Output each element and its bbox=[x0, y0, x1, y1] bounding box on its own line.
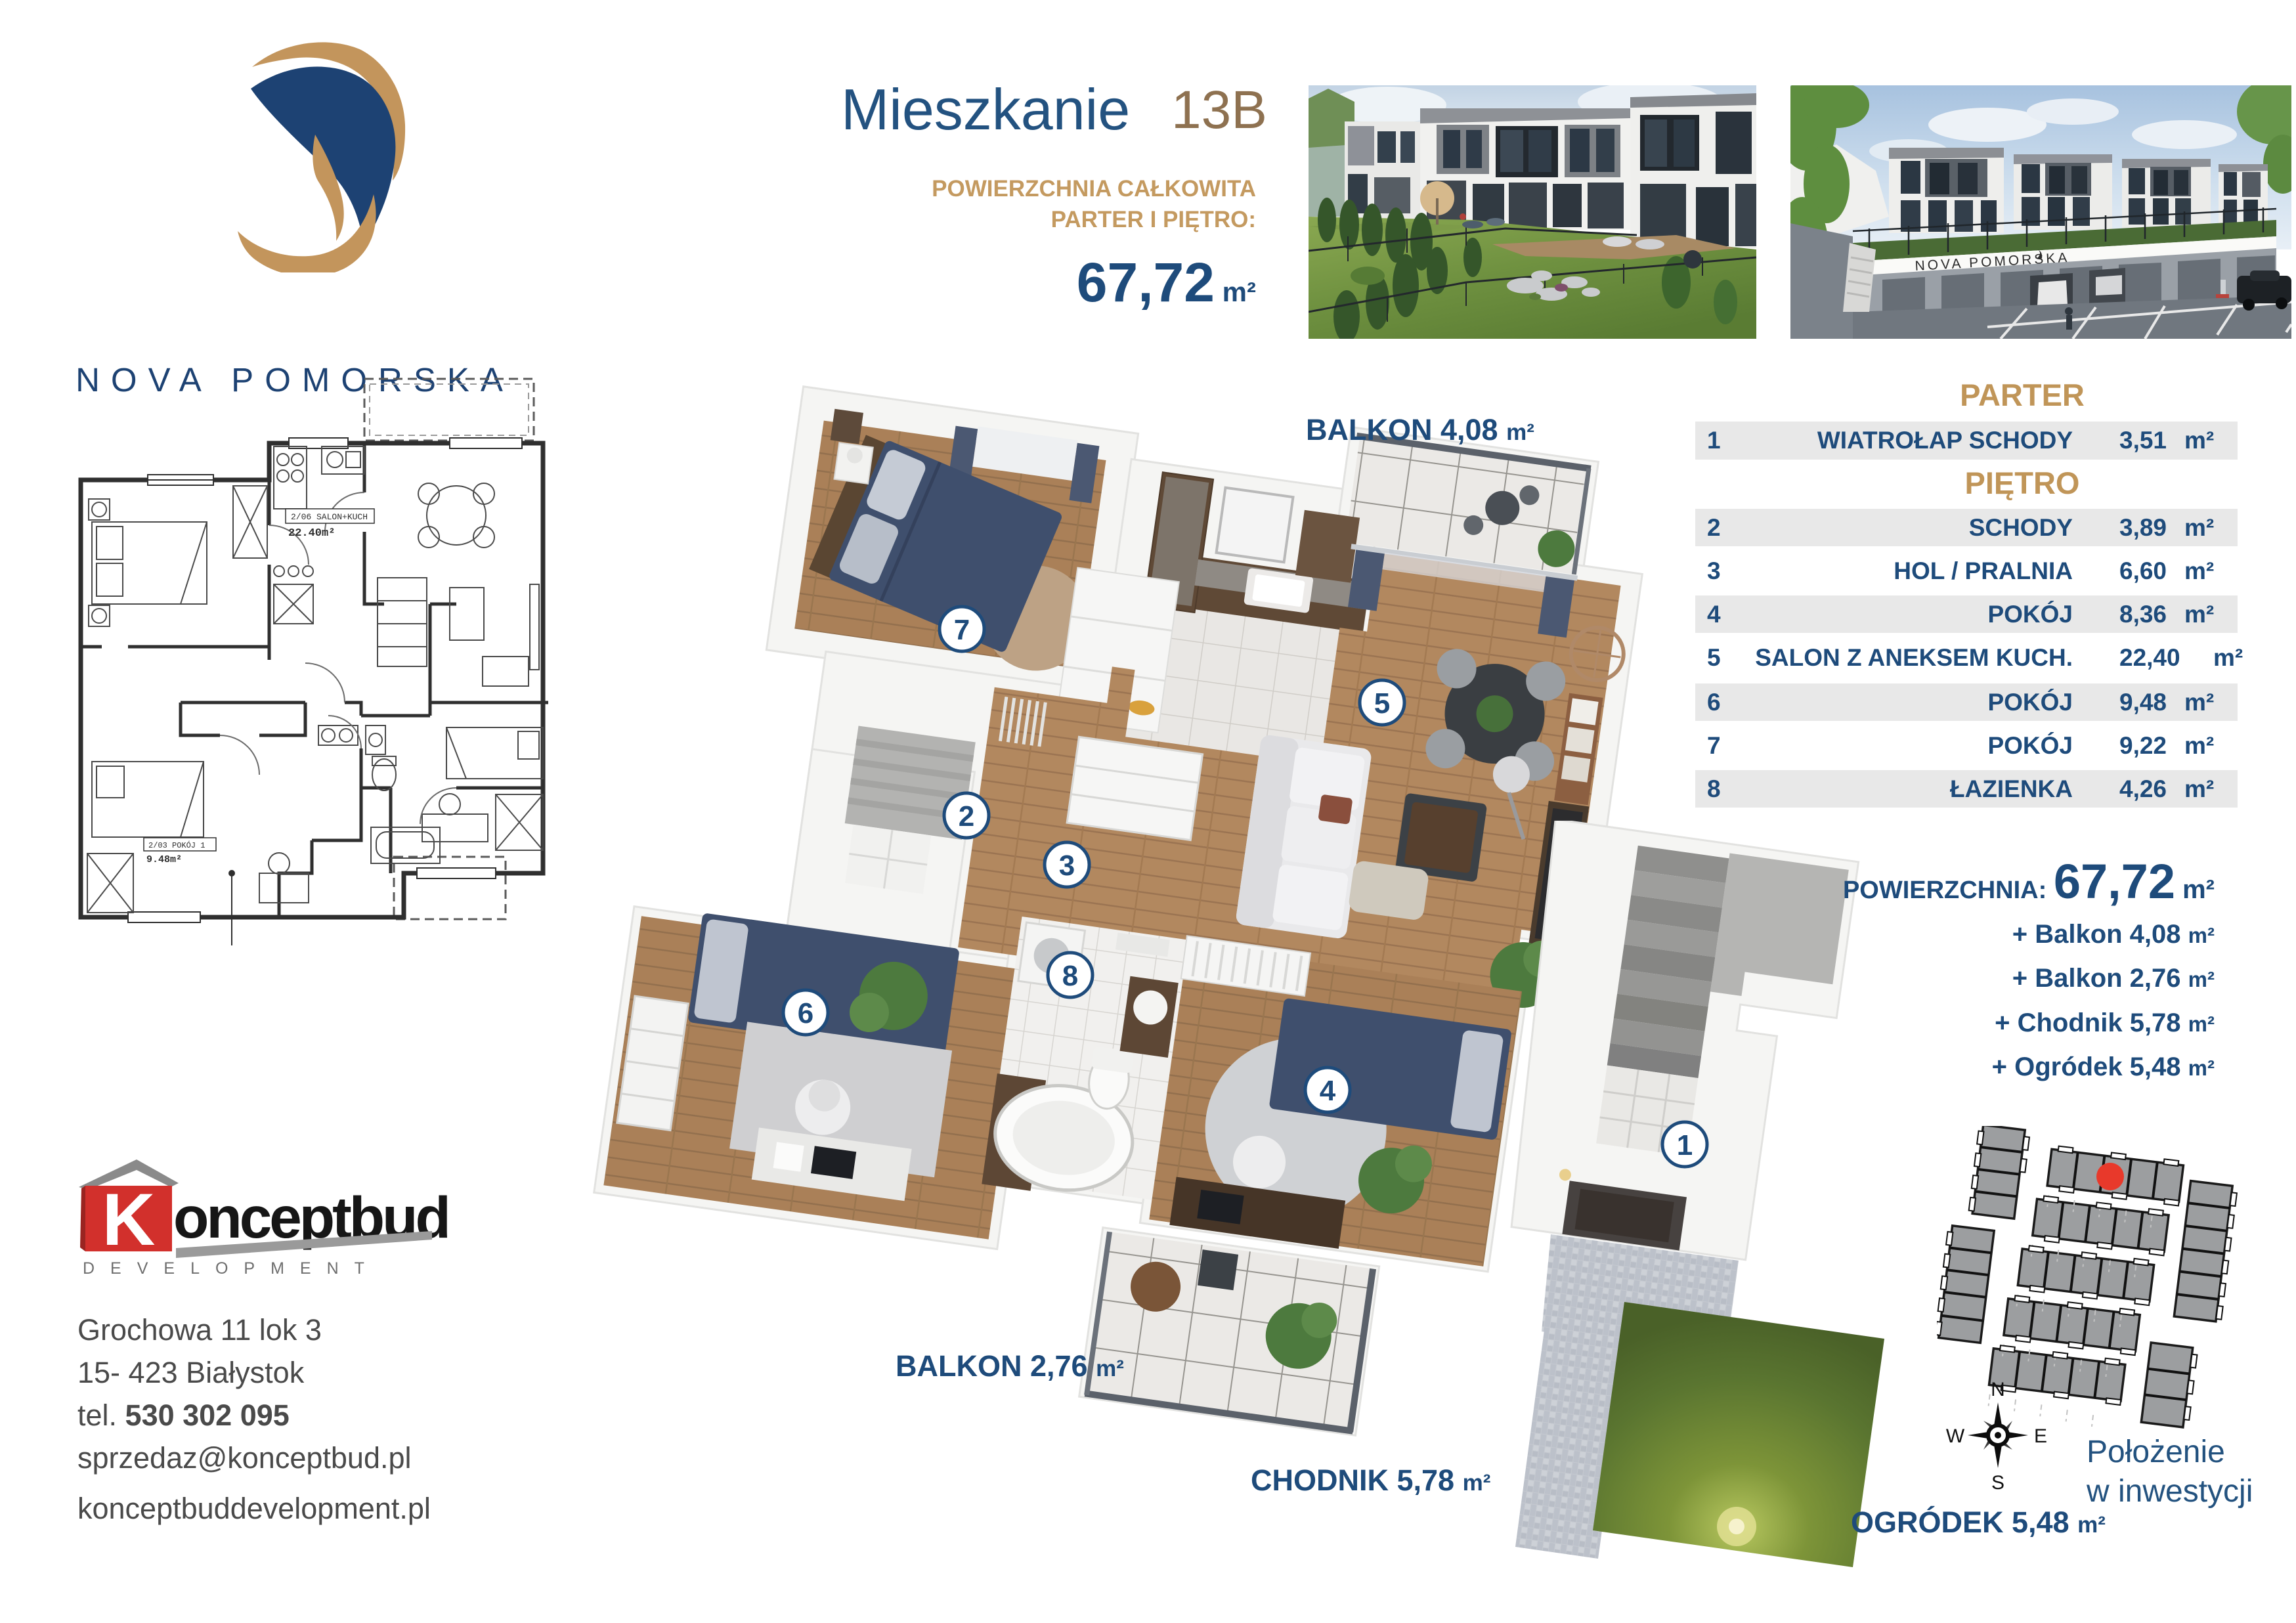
svg-text:S: S bbox=[1991, 1472, 2004, 1494]
svg-text:2/03 POKÓJ 1: 2/03 POKÓJ 1 bbox=[148, 840, 205, 850]
svg-text:3: 3 bbox=[1059, 850, 1075, 882]
svg-text:N: N bbox=[1991, 1379, 2005, 1400]
svg-text:2/06 SALON+KUCH: 2/06 SALON+KUCH bbox=[291, 512, 368, 522]
svg-text:4: 4 bbox=[1320, 1075, 1336, 1107]
svg-text:K: K bbox=[102, 1179, 156, 1261]
svg-text:DEVELOPMENT: DEVELOPMENT bbox=[83, 1259, 380, 1278]
svg-text:6: 6 bbox=[798, 997, 813, 1029]
svg-text:2: 2 bbox=[959, 800, 974, 833]
svg-text:W: W bbox=[1946, 1425, 1965, 1447]
svg-text:5: 5 bbox=[1374, 687, 1390, 720]
svg-text:8: 8 bbox=[1062, 960, 1078, 992]
svg-text:9.48m²: 9.48m² bbox=[146, 854, 182, 865]
svg-text:E: E bbox=[2034, 1425, 2047, 1447]
svg-text:22.40m²: 22.40m² bbox=[288, 527, 335, 540]
svg-text:1: 1 bbox=[1677, 1129, 1693, 1161]
svg-text:7: 7 bbox=[954, 614, 970, 646]
